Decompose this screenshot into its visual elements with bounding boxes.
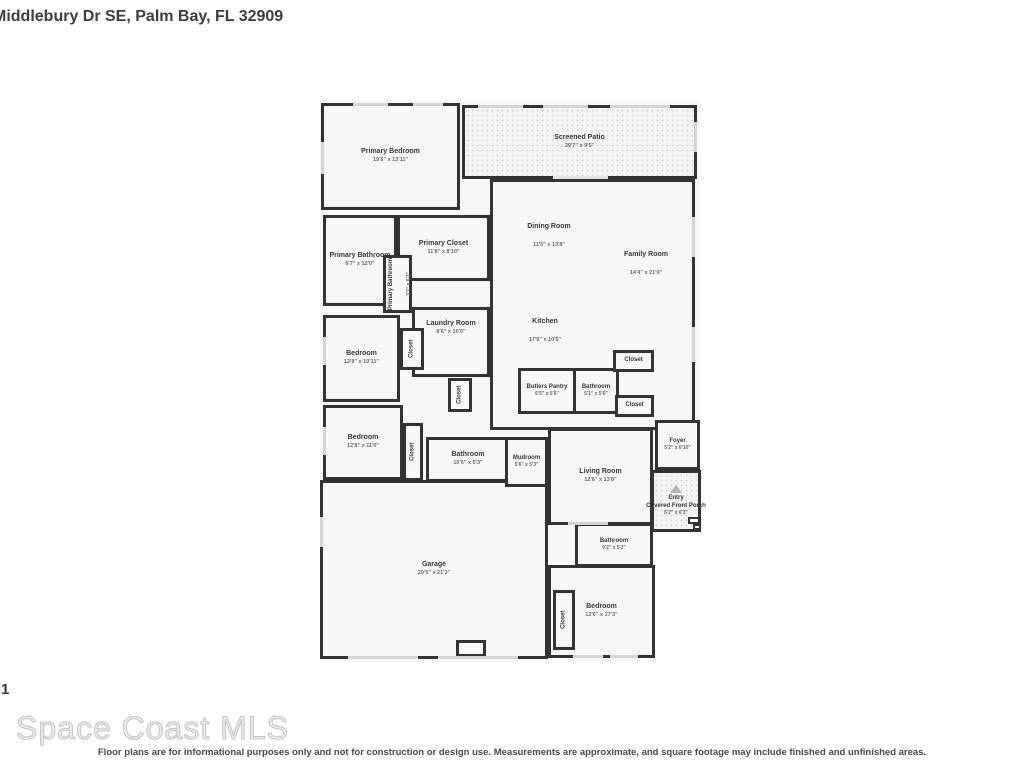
room-dims: 10'6" x 5'3" xyxy=(453,460,482,468)
room-bathroom-4: Bathroom 9'2" x 5'2" xyxy=(575,523,653,567)
room-dims: 6'5" x 5'6" xyxy=(535,391,559,398)
room-closet: Closet xyxy=(403,423,423,481)
window-marker xyxy=(610,655,638,658)
room-bathroom-2: Bathroom 5'1" x 5'6" xyxy=(573,368,619,414)
room-name: Family Room xyxy=(624,251,668,258)
room-name: Closet xyxy=(409,443,417,461)
room-name: Living Room xyxy=(579,468,621,477)
room-living-room: Living Room 12'6" x 13'8" xyxy=(548,428,653,525)
room-label-vertical: Primary Bathroom 3'7" x 6'2" xyxy=(380,258,416,310)
room-name: Primary Bathroom xyxy=(389,258,395,310)
room-closet: Closet xyxy=(400,328,424,370)
floor-plan: Screened Patio 29'7" x 9'5" Dining Room … xyxy=(318,97,702,665)
room-dims: 12'6" x 17'3" xyxy=(585,612,617,620)
room-name: Laundry Room xyxy=(426,320,475,329)
room-dims: 12'6" x 13'8" xyxy=(584,477,616,485)
entry-arrow-icon xyxy=(670,485,682,493)
room-dims: 11'8" x 8'10" xyxy=(428,249,460,257)
room-name: Bathroom xyxy=(451,451,484,460)
room-name: Kitchen xyxy=(532,318,558,325)
disclaimer-text: Floor plans are for informational purpos… xyxy=(98,747,926,758)
room-name: Closet xyxy=(560,611,568,629)
room-dims: 12'8" x 10'11" xyxy=(344,359,379,367)
room-name: Bathroom xyxy=(582,384,610,392)
room-name: Closet xyxy=(624,357,642,365)
room-name: Mudroom xyxy=(513,455,540,463)
room-name: Closet xyxy=(625,402,643,410)
room-name: Garage xyxy=(422,561,446,570)
room-name: Bathroom xyxy=(600,538,628,546)
room-closet: Closet xyxy=(553,590,575,650)
entry-steps xyxy=(688,517,700,524)
window-marker xyxy=(694,122,697,152)
room-bedroom-3: Bedroom 12'8" x 11'0" xyxy=(323,405,403,480)
room-name: Entry xyxy=(668,495,683,503)
room-dims: 5'1" x 5'6" xyxy=(584,391,608,398)
window-marker xyxy=(568,522,608,525)
room-name: Screened Patio xyxy=(554,134,605,143)
window-marker xyxy=(543,105,588,108)
room-screened-patio: Screened Patio 29'7" x 9'5" xyxy=(462,105,697,179)
room-closet: Closet xyxy=(613,350,654,372)
room-dims: 5'2" x 6'10" xyxy=(664,445,691,452)
room-name: Bedroom xyxy=(346,350,377,359)
window-marker xyxy=(348,656,418,659)
room-dims: 6'7" x 12'0" xyxy=(345,261,374,269)
room-name: Primary Closet xyxy=(419,240,468,249)
window-marker xyxy=(610,105,670,108)
page-title: Middlebury Dr SE, Palm Bay, FL 32909 xyxy=(0,8,283,26)
room-dims: 17'9" x 10'5" xyxy=(529,337,561,343)
window-marker xyxy=(478,105,523,108)
room-dims: 12'8" x 11'0" xyxy=(347,443,379,451)
room-name: Closet xyxy=(456,386,464,404)
room-foyer: Foyer 5'2" x 6'10" xyxy=(655,420,700,470)
room-label-kitchen: Kitchen 17'9" x 10'5" xyxy=(529,310,561,346)
mls-watermark: Space Coast MLS xyxy=(16,710,289,747)
room-garage: Garage 29'5" x 21'3" xyxy=(320,480,548,659)
window-marker xyxy=(413,103,443,106)
room-dims: 9'2" x 5'2" xyxy=(602,545,626,552)
window-marker xyxy=(692,327,695,362)
room-dims: 6'2" x 6'3" xyxy=(664,510,688,517)
room-dims: 29'5" x 21'3" xyxy=(418,570,450,578)
room-dims: 29'7" x 9'5" xyxy=(565,143,594,151)
window-marker xyxy=(438,656,518,659)
window-marker xyxy=(323,427,326,455)
window-marker xyxy=(320,517,323,547)
window-marker xyxy=(573,655,603,658)
room-primary-bedroom: Primary Bedroom 19'6" x 13'11" xyxy=(321,103,460,210)
room-dims: 11'5" x 13'8" xyxy=(533,242,565,248)
entry-steps xyxy=(693,524,701,530)
room-name: Bedroom xyxy=(348,434,379,443)
room-dims: 19'6" x 13'11" xyxy=(373,157,408,165)
room-name: Closet xyxy=(408,340,416,358)
room-name: Foyer xyxy=(669,438,685,446)
room-name: Butlers Pantry xyxy=(526,384,567,392)
room-dims: 8'6" x 10'5" xyxy=(436,329,465,337)
room-dims: 3'7" x 6'2" xyxy=(407,272,413,296)
room-label-dining: Dining Room 11'5" x 13'8" xyxy=(527,215,571,251)
room-closet: Closet xyxy=(448,378,472,412)
room-closet: Closet xyxy=(615,395,654,417)
room-mudroom: Mudroom 5'6" x 5'3" xyxy=(505,437,548,487)
garage-entry-step xyxy=(456,640,486,657)
room-bathroom-3: Bathroom 10'6" x 5'3" xyxy=(426,437,510,482)
room-name: Primary Bedroom xyxy=(361,148,420,157)
floor-level-label: 1 xyxy=(1,681,9,698)
window-marker xyxy=(692,217,695,257)
room-bedroom-2: Bedroom 12'8" x 10'11" xyxy=(323,315,400,402)
room-butlers-pantry: Butlers Pantry 6'5" x 5'6" xyxy=(518,368,576,414)
window-marker xyxy=(321,142,324,174)
window-marker xyxy=(323,337,326,365)
door-opening xyxy=(553,176,608,179)
room-name: Bedroom xyxy=(586,603,617,612)
room-name: Dining Room xyxy=(527,223,571,230)
window-marker xyxy=(353,103,388,106)
room-dims: 14'4" x 21'9" xyxy=(630,270,662,276)
room-name: Covered Front Porch xyxy=(646,503,706,511)
room-primary-water-closet: Primary Bathroom 3'7" x 6'2" xyxy=(383,255,412,313)
room-label-family: Family Room 14'4" x 21'9" xyxy=(624,243,668,279)
room-dims: 5'6" x 5'3" xyxy=(515,462,539,469)
